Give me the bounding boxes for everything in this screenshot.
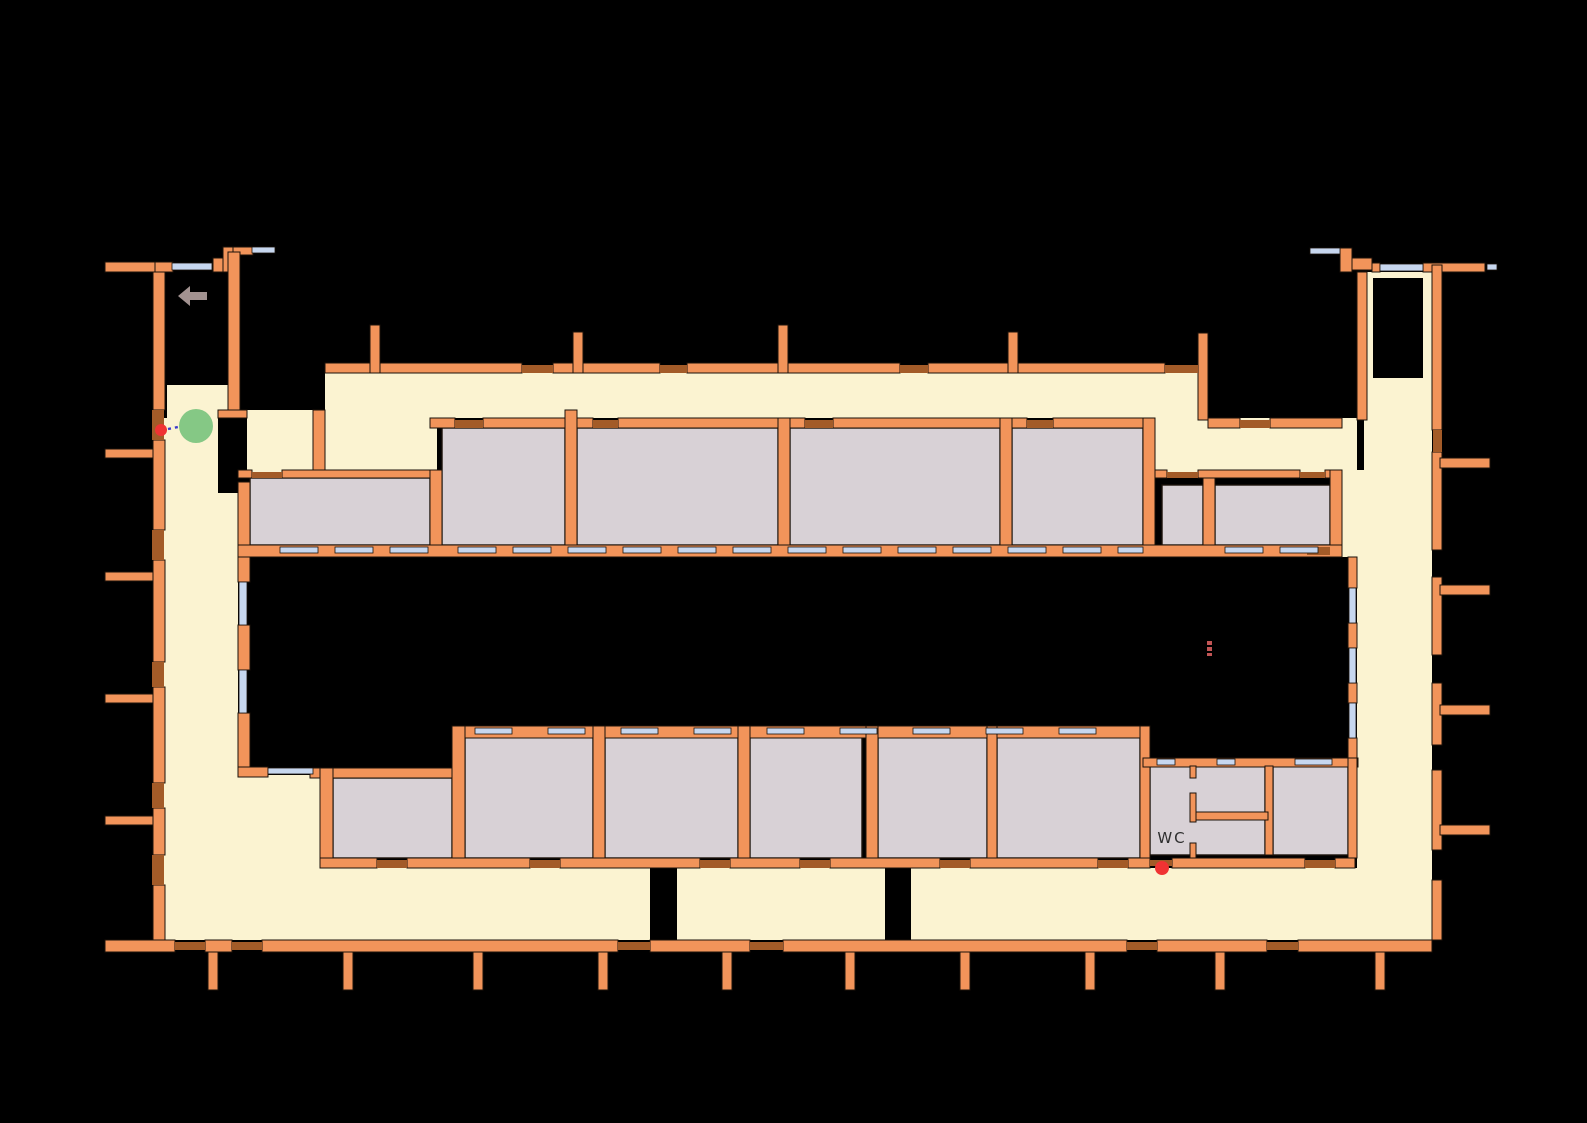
window [843, 547, 881, 553]
wall-segment [238, 713, 250, 767]
wall-segment [218, 410, 247, 418]
void-patch [1373, 278, 1423, 378]
window [1380, 264, 1423, 271]
door-opening [152, 530, 164, 560]
window [623, 547, 661, 553]
wall-segment [1190, 843, 1196, 858]
wall-segment [1348, 557, 1357, 588]
door-opening [1305, 860, 1335, 868]
window [1008, 547, 1046, 553]
room [605, 737, 738, 858]
wall-segment [430, 470, 442, 557]
window [252, 247, 275, 253]
wall-segment [153, 808, 165, 855]
window [390, 547, 428, 553]
wall-segment [1198, 333, 1208, 420]
void-patch [885, 868, 911, 943]
waypoint-marker[interactable] [155, 424, 167, 436]
wall-segment [1330, 470, 1342, 557]
red-dash-mark [1207, 641, 1212, 645]
red-dash-mark [1207, 653, 1212, 656]
window [1225, 547, 1263, 553]
wall-segment [105, 262, 155, 272]
room [1012, 428, 1143, 545]
window [458, 547, 496, 553]
window [239, 582, 247, 625]
window [733, 547, 771, 553]
window [621, 728, 658, 734]
window [280, 547, 318, 553]
wall-segment [1053, 418, 1155, 428]
wall-segment [320, 768, 333, 868]
door-opening [1433, 430, 1442, 452]
wall-segment [778, 325, 788, 373]
wall-segment [1270, 418, 1342, 428]
door-opening [152, 855, 164, 885]
wall-segment [430, 418, 455, 428]
door-opening [1127, 942, 1157, 950]
wall-segment [618, 418, 805, 428]
door-opening [175, 942, 205, 950]
door-opening [940, 860, 970, 868]
window [568, 547, 606, 553]
wall-segment [1008, 332, 1018, 373]
window [678, 547, 716, 553]
wall-segment [155, 262, 173, 272]
window [1487, 264, 1497, 270]
window [767, 728, 804, 734]
wall-segment [238, 625, 250, 670]
room [465, 737, 593, 858]
floor-area [1357, 557, 1432, 868]
door-opening [152, 783, 164, 808]
window [1063, 547, 1101, 553]
window [913, 728, 950, 734]
wall-segment [573, 332, 583, 373]
wall-segment [262, 940, 618, 952]
wall-segment [970, 858, 1098, 868]
wall-segment [730, 858, 800, 868]
window [513, 547, 551, 553]
floor-area [153, 493, 238, 940]
waypoint-marker[interactable] [1155, 861, 1169, 875]
window [475, 728, 512, 734]
floorplan-svg: WC [0, 0, 1587, 1123]
wall-segment [153, 272, 165, 410]
wall-segment [1298, 940, 1432, 952]
window [1310, 248, 1340, 254]
wall-segment [105, 816, 153, 825]
wall-segment [866, 726, 878, 868]
wall-segment [553, 363, 660, 373]
window [1118, 547, 1143, 553]
door-opening [530, 860, 560, 868]
floor-area [325, 418, 437, 478]
room [997, 737, 1140, 858]
wall-segment [830, 858, 940, 868]
window [548, 728, 585, 734]
wall-segment [153, 440, 165, 530]
floor-area [247, 410, 313, 478]
wall-segment [1432, 770, 1442, 850]
wall-segment [1265, 766, 1273, 855]
wall-segment [650, 940, 750, 952]
room [1215, 485, 1330, 545]
wall-segment [778, 418, 790, 557]
door-opening [522, 365, 553, 373]
wall-segment [1352, 258, 1372, 270]
wall-segment [1085, 952, 1095, 990]
room [250, 478, 430, 545]
wall-segment [105, 694, 153, 703]
door-opening [377, 860, 407, 868]
wall-segment [205, 940, 232, 952]
wall-segment [1215, 952, 1225, 990]
wall-segment [1348, 683, 1357, 703]
window [172, 263, 212, 270]
wall-segment [1190, 793, 1196, 822]
floor-area [238, 775, 320, 868]
wall-segment [565, 410, 577, 557]
room [577, 428, 778, 545]
wall-segment [1348, 758, 1357, 858]
door-opening [252, 472, 282, 478]
wall-segment [1432, 880, 1442, 940]
window [898, 547, 936, 553]
room [790, 428, 1000, 545]
floor-area [1342, 470, 1432, 557]
wall-segment [473, 952, 483, 990]
wall-segment [783, 940, 1127, 952]
wall-segment [452, 726, 465, 868]
wall-segment [1157, 940, 1267, 952]
door-opening [660, 365, 687, 373]
door-opening [700, 860, 730, 868]
wall-segment [407, 858, 530, 868]
floor-area [325, 373, 1155, 418]
wall-segment [228, 252, 240, 415]
door-opening [152, 662, 164, 687]
wall-segment [1357, 272, 1367, 420]
window [694, 728, 731, 734]
wall-segment [238, 557, 250, 582]
wall-segment [153, 687, 165, 783]
window [1059, 728, 1096, 734]
wall-segment [208, 952, 218, 990]
wall-segment [238, 470, 252, 478]
wall-segment [1432, 265, 1442, 430]
window [986, 728, 1023, 734]
door-opening [900, 365, 928, 373]
door-opening [1240, 420, 1270, 428]
door-opening [805, 420, 833, 428]
door-opening [1098, 860, 1128, 868]
door-opening [593, 420, 618, 428]
agent-marker[interactable] [179, 409, 213, 443]
room [750, 737, 862, 858]
room [1162, 485, 1203, 545]
wall-segment [153, 560, 165, 662]
wall-segment [593, 726, 605, 868]
wall-segment [1208, 418, 1240, 428]
room [333, 778, 452, 858]
window [1280, 547, 1318, 553]
void-patch [650, 868, 677, 943]
window [1295, 759, 1332, 765]
window [268, 768, 313, 774]
wall-segment [325, 363, 522, 373]
wall-segment [928, 363, 1165, 373]
wall-segment [1155, 470, 1167, 478]
wall-segment [320, 858, 377, 868]
wall-segment [722, 952, 732, 990]
wall-segment [105, 940, 175, 952]
window [1157, 759, 1175, 765]
door-opening [1167, 472, 1198, 478]
wall-segment [1340, 248, 1352, 272]
wall-segment [738, 726, 750, 868]
red-dash-mark [1207, 647, 1212, 651]
door-opening [1267, 942, 1298, 950]
wall-segment [343, 952, 353, 990]
window [1349, 588, 1356, 623]
wall-segment [1440, 585, 1490, 595]
window [1217, 759, 1235, 765]
window [788, 547, 826, 553]
wall-segment [1348, 738, 1357, 758]
room [1273, 766, 1348, 855]
wall-segment [1143, 418, 1155, 557]
wall-segment [1335, 858, 1355, 868]
door-opening [1165, 365, 1198, 373]
wall-segment [833, 418, 1027, 428]
wall-segment [105, 449, 153, 458]
wall-segment [1196, 812, 1268, 820]
wall-segment [153, 885, 165, 940]
door-opening [750, 942, 783, 950]
wall-segment [960, 952, 970, 990]
wall-segment [1440, 825, 1490, 835]
window [953, 547, 991, 553]
wall-segment [560, 858, 700, 868]
window [239, 670, 247, 713]
door-opening [232, 942, 262, 950]
door-opening [455, 420, 483, 428]
window [1349, 648, 1356, 683]
door-opening [618, 942, 650, 950]
wall-segment [238, 767, 268, 777]
wall-segment [1128, 858, 1150, 868]
wall-segment [1440, 458, 1490, 468]
wall-segment [105, 572, 153, 581]
floor-area [238, 868, 1432, 940]
wall-segment [313, 410, 325, 478]
wall-segment [1140, 726, 1150, 860]
door-opening [1027, 420, 1053, 428]
wall-segment [1172, 858, 1305, 868]
wall-segment [1190, 766, 1196, 778]
wall-segment [370, 325, 380, 373]
wc-room-label: WC [1157, 829, 1186, 847]
room [442, 428, 565, 545]
door-opening [1300, 472, 1325, 478]
wall-segment [1348, 623, 1357, 648]
wall-segment [1440, 705, 1490, 715]
room [878, 737, 987, 858]
wall-segment [845, 952, 855, 990]
wall-segment [687, 363, 900, 373]
window [840, 728, 877, 734]
wall-segment [987, 726, 997, 868]
wall-segment [1198, 470, 1300, 478]
floorplan-viewport: WC [0, 0, 1587, 1123]
door-opening [800, 860, 830, 868]
window [1349, 703, 1356, 738]
wall-segment [1375, 952, 1385, 990]
wall-segment [598, 952, 608, 990]
window [335, 547, 373, 553]
wall-segment [1000, 418, 1012, 557]
wall-segment [1372, 263, 1380, 272]
wall-segment [282, 470, 442, 478]
